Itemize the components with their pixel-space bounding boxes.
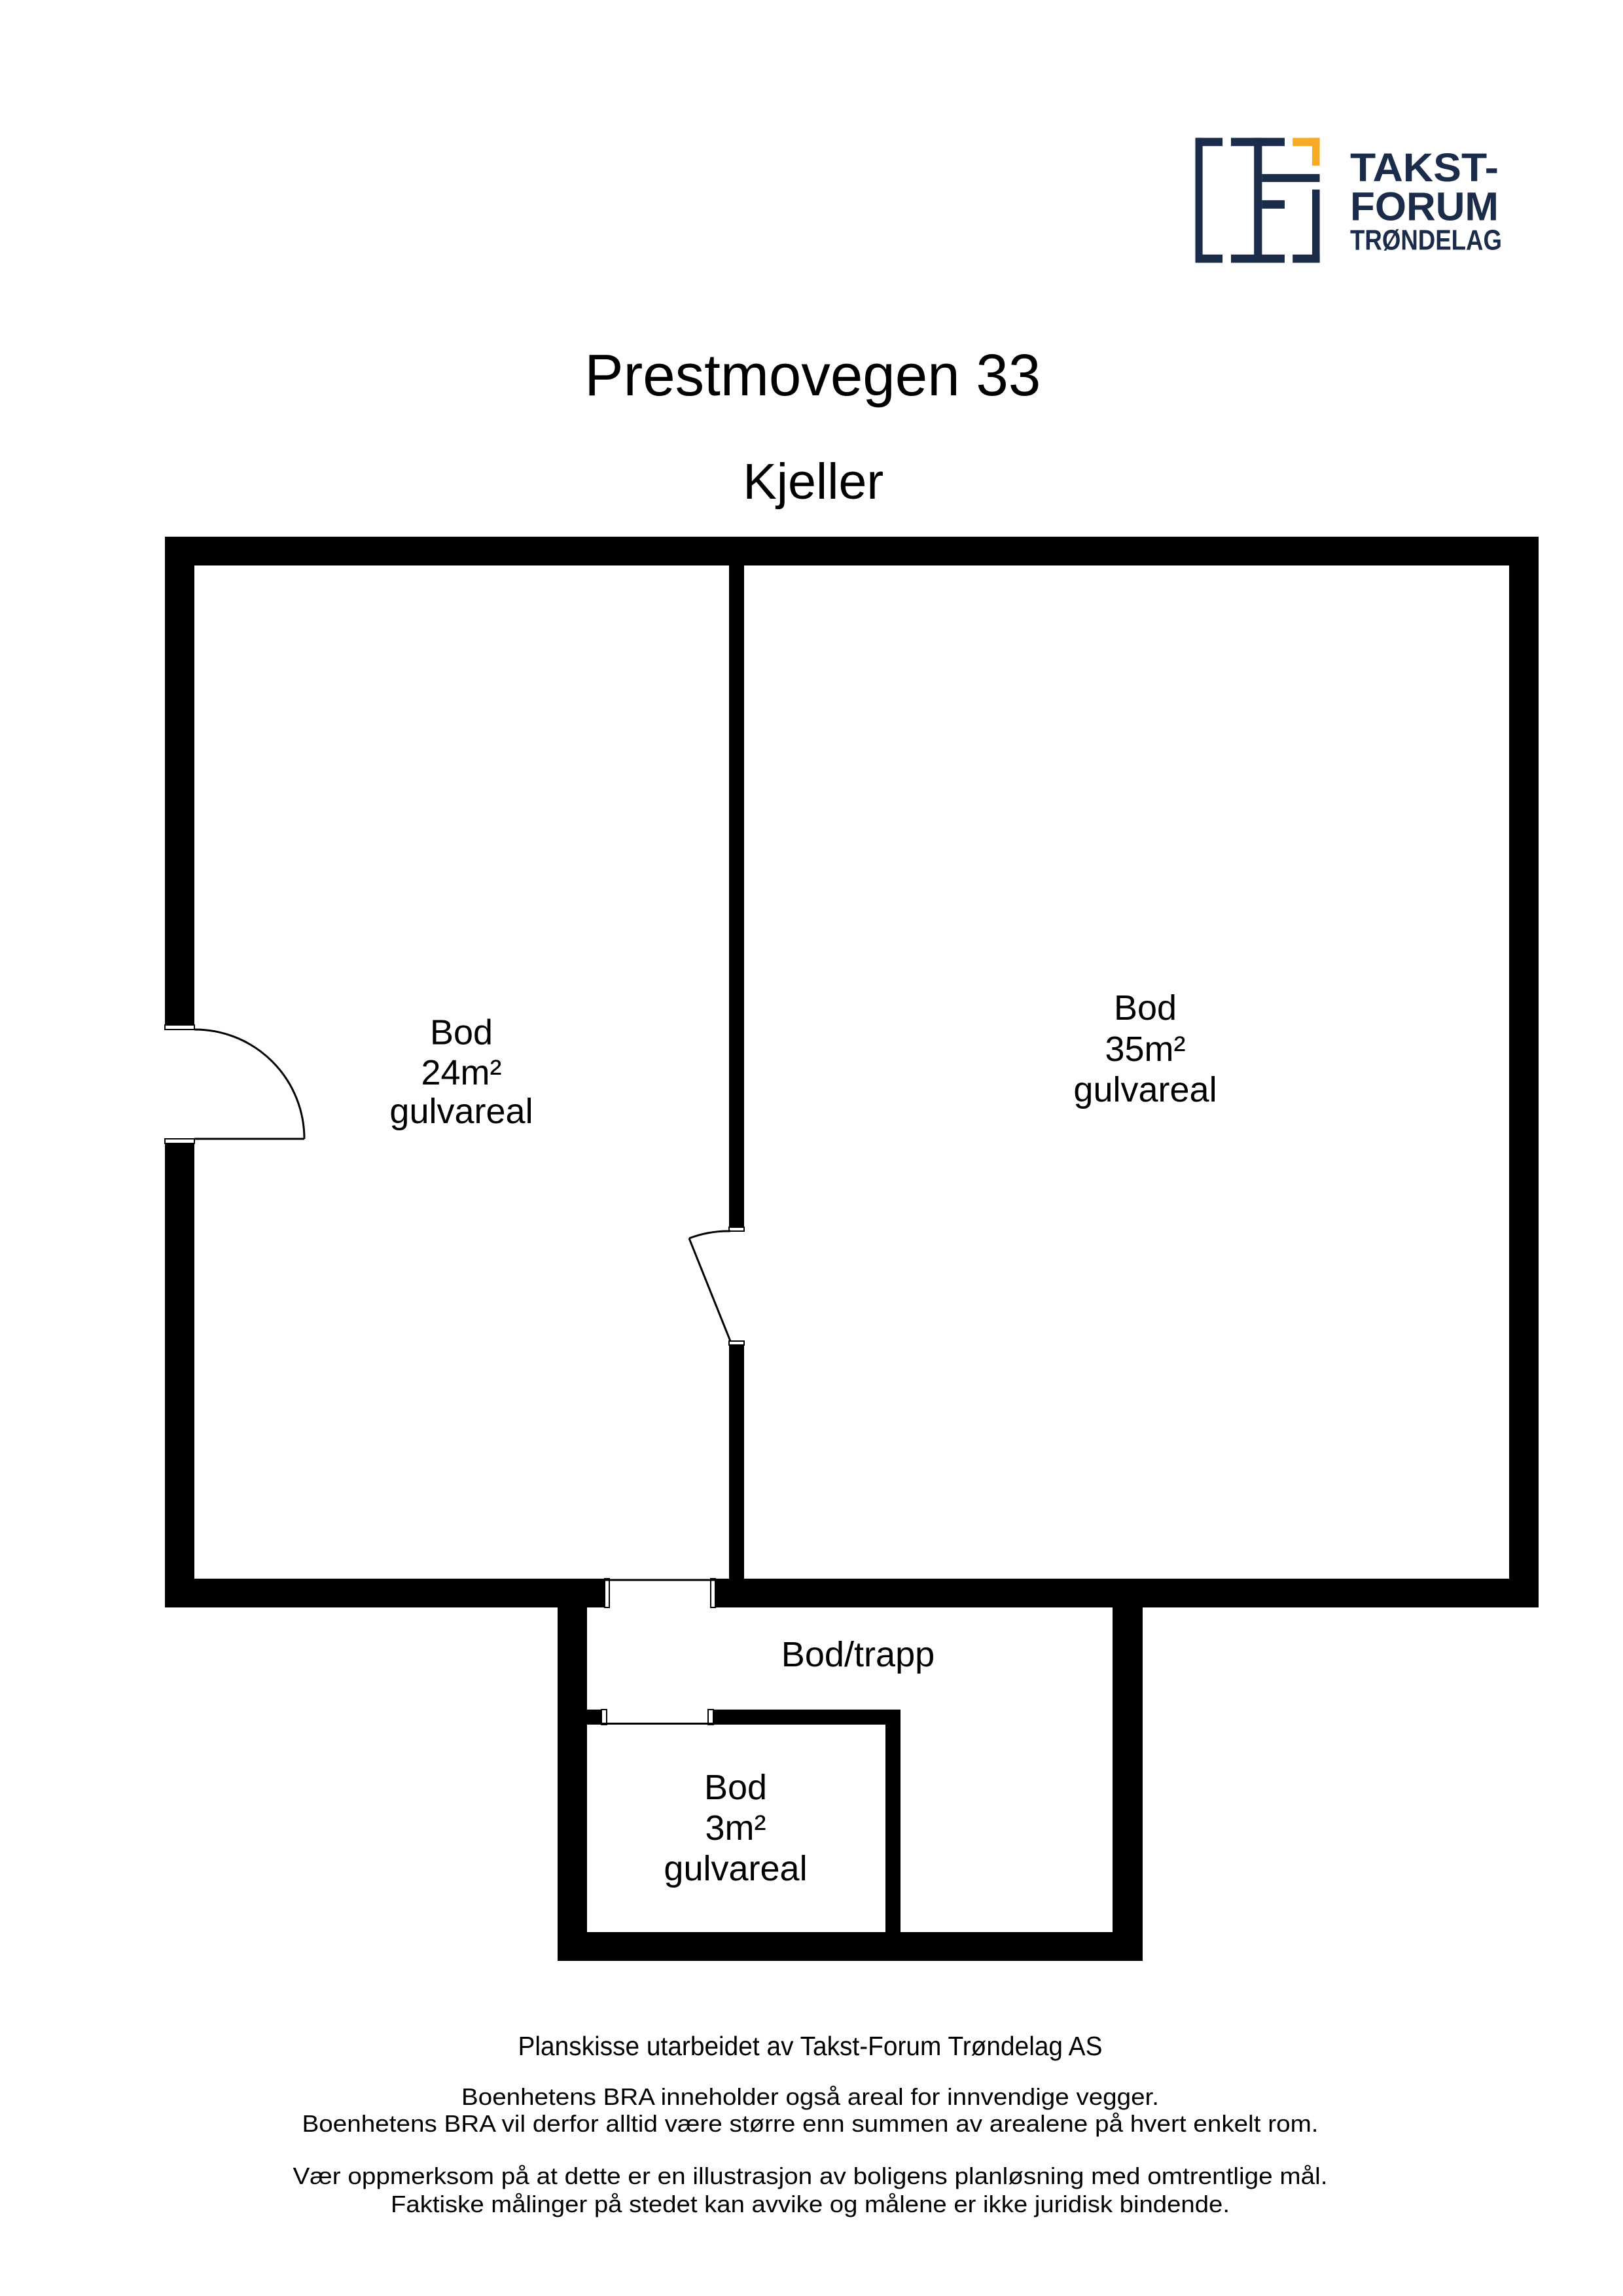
svg-text:Boenhetens BRA inneholder også: Boenhetens BRA inneholder også areal for… [461, 2083, 1159, 2110]
svg-text:gulvareal: gulvareal [1073, 1070, 1217, 1109]
svg-text:Bod: Bod [430, 1013, 493, 1052]
svg-text:Planskisse utarbeidet av Takst: Planskisse utarbeidet av Takst-Forum Trø… [518, 2031, 1103, 2061]
svg-text:35m²: 35m² [1105, 1030, 1185, 1069]
svg-text:Prestmovegen 33: Prestmovegen 33 [584, 343, 1041, 408]
svg-text:TAKST-: TAKST- [1350, 145, 1499, 190]
svg-text:Bod: Bod [1114, 988, 1177, 1028]
svg-text:Boenhetens BRA vil derfor allt: Boenhetens BRA vil derfor alltid være st… [302, 2110, 1319, 2137]
svg-text:FORUM: FORUM [1350, 185, 1499, 229]
svg-text:Bod: Bod [704, 1768, 767, 1807]
svg-text:Faktiske målinger på stedet ka: Faktiske målinger på stedet kan avvike o… [391, 2191, 1230, 2217]
svg-text:24m²: 24m² [421, 1053, 501, 1092]
svg-text:Kjeller: Kjeller [743, 454, 883, 510]
svg-text:Vær oppmerksom på at dette er: Vær oppmerksom på at dette er en illustr… [293, 2162, 1328, 2189]
svg-text:Bod/trapp: Bod/trapp [781, 1635, 935, 1674]
svg-text:TRØNDELAG: TRØNDELAG [1350, 224, 1502, 257]
svg-text:gulvareal: gulvareal [389, 1092, 533, 1131]
svg-text:3m²: 3m² [705, 1808, 766, 1848]
svg-text:gulvareal: gulvareal [664, 1849, 807, 1888]
